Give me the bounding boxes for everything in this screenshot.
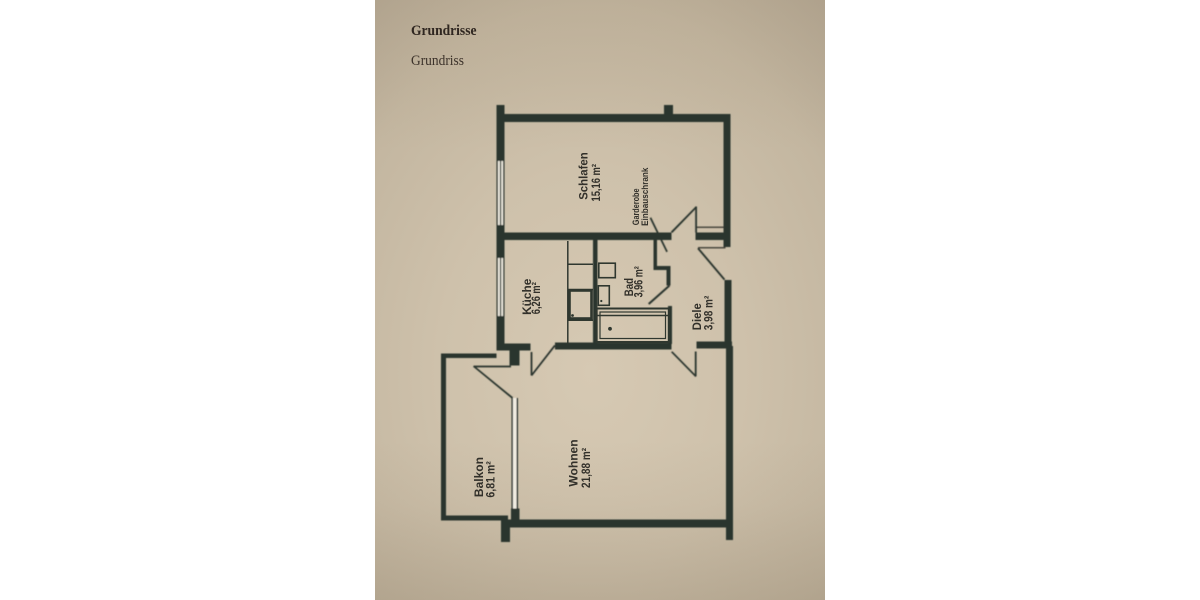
svg-text:Einbauschrank: Einbauschrank [640, 167, 650, 226]
svg-text:21,88 m²: 21,88 m² [579, 448, 593, 488]
svg-text:6,26 m²: 6,26 m² [529, 282, 543, 314]
svg-text:6,81 m²: 6,81 m² [483, 461, 497, 497]
svg-text:3,96 m²: 3,96 m² [631, 266, 645, 297]
svg-text:Grundrisse: Grundrisse [411, 23, 477, 39]
svg-text:3,98 m²: 3,98 m² [701, 296, 715, 331]
svg-text:Grundriss: Grundriss [411, 53, 464, 69]
svg-text:15,16 m²: 15,16 m² [589, 164, 603, 202]
